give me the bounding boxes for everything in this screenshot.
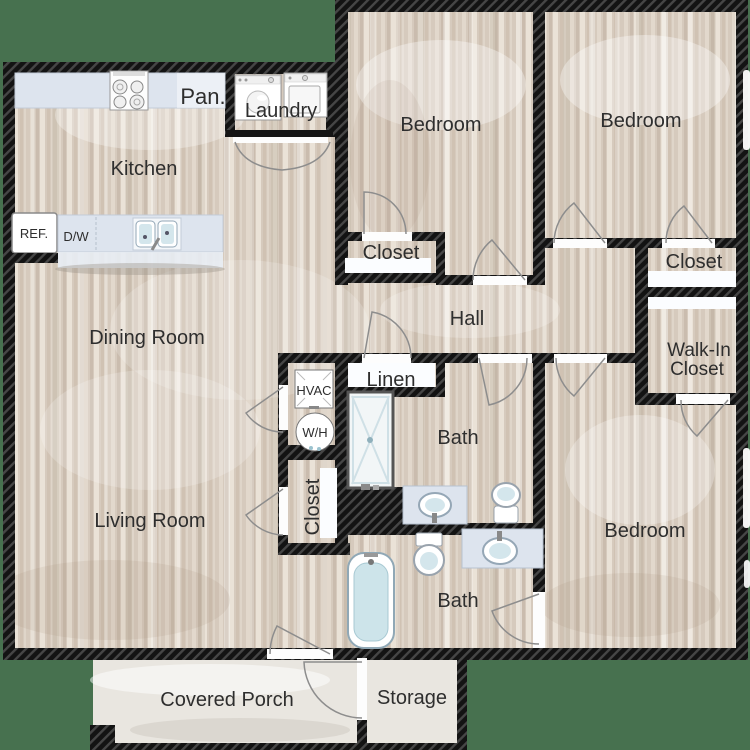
room-label-closet-top-right: Closet: [666, 251, 723, 273]
room-label-closet-living: Closet: [302, 478, 324, 535]
fixture-label-dishwasher: D/W: [63, 229, 89, 244]
room-label-walk-in-line2: Closet: [670, 359, 725, 380]
room-label-kitchen: Kitchen: [111, 158, 178, 180]
room-label-living: Living Room: [94, 510, 205, 532]
floor-plan: Kitchen Pan. Laundry Bedroom Bedroom Clo…: [0, 0, 750, 750]
room-label-linen: Linen: [367, 369, 416, 391]
room-label-dining: Dining Room: [89, 327, 205, 349]
bath-upper-vanity-sink: [403, 486, 467, 524]
room-label-porch: Covered Porch: [160, 689, 293, 711]
kitchen-sink: [133, 218, 181, 250]
room-label-bath-upper: Bath: [437, 427, 478, 449]
room-label-laundry: Laundry: [245, 100, 317, 122]
room-label-bedroom-top-left: Bedroom: [400, 114, 481, 136]
room-label-bedroom-top-right: Bedroom: [600, 110, 681, 132]
floor-plan-svg: Kitchen Pan. Laundry Bedroom Bedroom Clo…: [0, 0, 750, 750]
room-label-bedroom-right: Bedroom: [604, 520, 685, 542]
room-label-bath-lower: Bath: [437, 590, 478, 612]
bath-upper-toilet: [492, 483, 520, 523]
bath-lower-toilet: [414, 533, 444, 575]
fixture-label-refrigerator: REF.: [20, 226, 48, 241]
room-label-storage: Storage: [377, 687, 447, 709]
fixture-label-water-heater: W/H: [302, 425, 327, 440]
room-label-hall: Hall: [450, 308, 484, 330]
stove: [110, 71, 148, 110]
bathtub: [348, 553, 394, 648]
shower: [348, 392, 393, 490]
fixture-label-hvac: HVAC: [296, 383, 331, 398]
bath-lower-vanity-sink: [462, 529, 543, 568]
room-label-closet-top-left: Closet: [363, 242, 420, 264]
room-label-pantry: Pan.: [180, 84, 225, 109]
room-label-walk-in-line1: Walk-In: [667, 340, 731, 361]
